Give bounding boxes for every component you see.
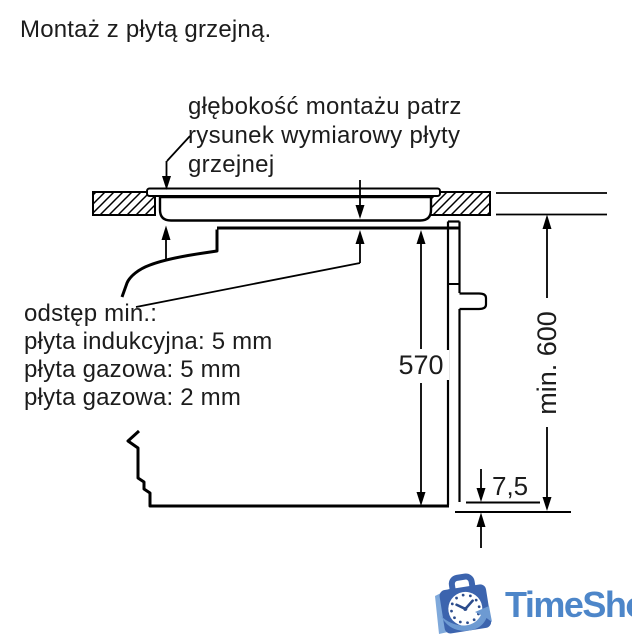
clearance-note-line-1: odstęp min.: bbox=[24, 300, 273, 328]
oven-side-rail bbox=[448, 222, 460, 506]
clearance-note-line-4: płyta gazowa: 2 mm bbox=[24, 384, 273, 412]
clearance-note: odstęp min.: płyta indukcyjna: 5 mm płyt… bbox=[24, 300, 273, 412]
clock-shopping-bag-icon bbox=[427, 572, 501, 638]
dim-label-570: 570 bbox=[393, 350, 449, 380]
clearance-arrow-left bbox=[162, 226, 171, 260]
dim-label-min-600: min. 600 bbox=[533, 303, 561, 423]
logo-text: TimeShop bbox=[505, 574, 632, 636]
depth-note-leader-arrow bbox=[162, 136, 190, 190]
mounting-bracket bbox=[460, 294, 487, 310]
hob-body bbox=[160, 197, 431, 221]
countertop-left bbox=[93, 192, 155, 215]
countertop-extension-lines bbox=[496, 193, 607, 215]
clearance-leader-arrow bbox=[136, 230, 365, 307]
dim-label-7-5: 7,5 bbox=[492, 471, 528, 501]
clearance-note-line-2: płyta indukcyjna: 5 mm bbox=[24, 328, 273, 356]
bag-front bbox=[437, 574, 492, 635]
timeshop-logo[interactable]: TimeShop bbox=[427, 572, 632, 638]
hob-glass bbox=[147, 189, 440, 197]
clearance-note-line-3: płyta gazowa: 5 mm bbox=[24, 356, 273, 384]
